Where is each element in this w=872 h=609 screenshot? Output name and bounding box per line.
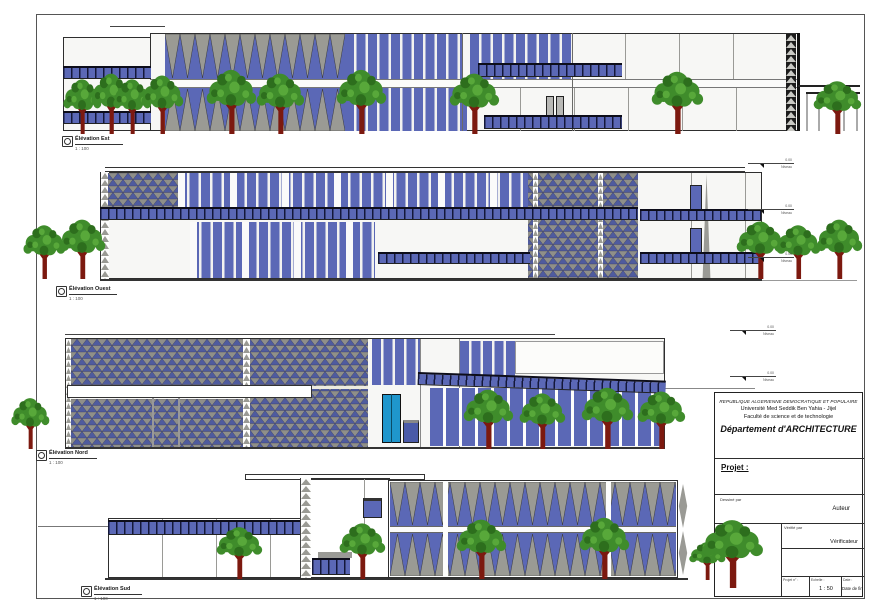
tree xyxy=(455,516,507,579)
view-title-text: Élévation Ouest 1 : 100 xyxy=(69,286,117,301)
tree xyxy=(10,395,50,449)
view-scale-label: 1 : 100 xyxy=(49,460,97,465)
level-triangle-icon xyxy=(742,331,746,335)
balcony-railing xyxy=(100,207,638,220)
level-marker: 0.00 Niveau xyxy=(748,163,794,168)
tree xyxy=(700,516,764,588)
department-line: Département d'ARCHITECTURE xyxy=(715,424,862,434)
view-title-nord: Élévation Nord 1 : 100 xyxy=(36,450,97,465)
lattice-facade xyxy=(528,173,638,278)
canopy-post xyxy=(178,398,180,447)
faculty-line: Faculté de science et de technologie xyxy=(715,414,862,420)
canopy-band xyxy=(67,385,312,398)
tree xyxy=(338,520,386,579)
level-value: 0.00 xyxy=(785,252,792,256)
view-title-label: Élévation Nord xyxy=(49,450,97,459)
parapet-line xyxy=(65,334,555,335)
checked-by-value: Vérificateur xyxy=(830,539,858,545)
glazing-upper xyxy=(372,339,420,385)
balcony-railing xyxy=(378,252,530,264)
level-triangle-icon xyxy=(742,377,746,381)
drawn-by-label: Dessiné par xyxy=(720,497,741,502)
date-value: Date de fin xyxy=(842,586,863,591)
tree xyxy=(636,388,686,449)
tree xyxy=(580,384,634,449)
checked-by-label: Vérifié par xyxy=(784,525,802,530)
level-triangle-icon xyxy=(760,258,764,262)
level-name: Niveau xyxy=(781,165,792,169)
view-title-label: Élévation Sud xyxy=(94,586,142,595)
view-title-text: Élévation Sud 1 : 100 xyxy=(94,586,142,601)
level-triangle-icon xyxy=(760,164,764,168)
tree xyxy=(140,72,184,134)
view-title-est: Élévation Est 1 : 100 xyxy=(62,136,123,151)
balcony-railing xyxy=(484,115,622,129)
louver-edge-strip xyxy=(300,478,310,578)
view-title-text: Élévation Est 1 : 100 xyxy=(75,136,123,151)
level-line xyxy=(730,376,776,377)
level-marker: 0.00 Niveau xyxy=(730,376,776,381)
divider xyxy=(715,458,864,459)
lattice-joint-strip xyxy=(533,173,538,278)
level-triangle-icon xyxy=(760,210,764,214)
level-line xyxy=(748,209,794,210)
upper-wall-panel xyxy=(515,341,664,374)
date-label: Date : xyxy=(843,578,852,582)
tree xyxy=(650,68,704,134)
level-value: 0.00 xyxy=(785,204,792,208)
tree xyxy=(335,66,387,134)
level-value: 0.00 xyxy=(767,371,774,375)
level-marker: 0.00 Niveau xyxy=(748,257,794,262)
tree xyxy=(448,70,500,134)
university-line: Université Med Seddik Ben Yahia - Jijel xyxy=(715,406,862,412)
facade-louver-lower xyxy=(390,533,676,576)
drawing-sheet: Élévation Est 1 : 100 0.00 Niveau 0.00 N… xyxy=(0,0,872,609)
facade-gap xyxy=(443,482,448,576)
ground-line xyxy=(762,280,857,281)
divider xyxy=(781,548,864,549)
level-name: Niveau xyxy=(763,378,774,382)
view-title-ouest: Élévation Ouest 1 : 100 xyxy=(56,286,117,301)
tree xyxy=(578,514,630,579)
corner-post xyxy=(797,33,800,131)
elevation-tag-icon xyxy=(62,136,73,147)
view-scale-label: 1 : 100 xyxy=(69,296,117,301)
kiosk xyxy=(403,420,419,443)
divider xyxy=(781,576,864,577)
tree xyxy=(518,390,566,449)
door-leaf-divider xyxy=(391,394,392,443)
project-number-label: Projet n° : xyxy=(783,578,798,582)
ground-line xyxy=(100,279,762,281)
view-scale-label: 1 : 100 xyxy=(94,596,142,601)
scale-value: 1 : 50 xyxy=(811,586,841,592)
canopy-post xyxy=(152,398,154,447)
view-scale-label: 1 : 100 xyxy=(75,146,123,151)
level-line xyxy=(748,257,794,258)
grade-line xyxy=(38,526,108,527)
divider xyxy=(781,523,782,596)
view-title-sud: Élévation Sud 1 : 100 xyxy=(81,586,142,601)
elevation-tag-icon xyxy=(81,586,92,597)
glazing-lower xyxy=(190,222,375,278)
level-name: Niveau xyxy=(781,259,792,263)
level-name: Niveau xyxy=(781,211,792,215)
drawn-by-value: Auteur xyxy=(832,506,850,512)
level-name: Niveau xyxy=(763,332,774,336)
republic-line: REPUBLIQUE ALGERIENNE DEMOCRATIQUE ET PO… xyxy=(715,399,862,404)
facade-louver-upper xyxy=(390,482,676,526)
scale-label: Echelle : xyxy=(811,578,824,582)
tree xyxy=(205,66,257,134)
tree xyxy=(215,524,263,579)
view-title-text: Élévation Nord 1 : 100 xyxy=(49,450,97,465)
project-label: Projet : xyxy=(721,463,749,472)
tree xyxy=(58,216,106,279)
roof-line xyxy=(110,26,165,27)
view-title-label: Élévation Ouest xyxy=(69,286,117,295)
lattice-facade xyxy=(67,339,243,385)
pergola-post xyxy=(806,94,808,131)
floor-slab-band xyxy=(390,526,676,533)
window xyxy=(363,498,382,518)
lattice-facade xyxy=(67,399,243,447)
level-line xyxy=(748,163,794,164)
ribbon-window xyxy=(108,520,310,535)
level-value: 0.00 xyxy=(767,325,774,329)
tree xyxy=(462,386,514,449)
tree xyxy=(815,216,863,279)
divider xyxy=(809,576,810,596)
elevation-tag-icon xyxy=(56,286,67,297)
divider xyxy=(715,494,864,495)
view-title-label: Élévation Est xyxy=(75,136,123,145)
level-marker: 0.00 Niveau xyxy=(730,330,776,335)
ground-line xyxy=(65,447,665,449)
tree xyxy=(255,70,305,134)
elevation-tag-icon xyxy=(36,450,47,461)
level-marker: 0.00 Niveau xyxy=(748,209,794,214)
lattice-joint-strip xyxy=(598,173,603,278)
level-value: 0.00 xyxy=(785,158,792,162)
level-line xyxy=(730,330,776,331)
tree xyxy=(812,78,862,134)
louver-edge-strip xyxy=(786,34,796,131)
